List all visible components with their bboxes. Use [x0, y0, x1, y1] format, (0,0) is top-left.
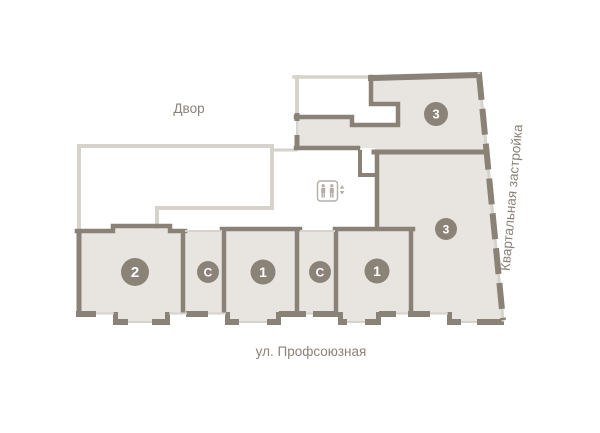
street-label: ул. Профсоюзная [256, 344, 367, 359]
apartment-3a-corridor-fill [296, 75, 486, 152]
unit-badge-s1[interactable]: С [197, 261, 219, 283]
unit-badge-1a[interactable]: 1 [251, 260, 276, 285]
person-icon [330, 184, 334, 197]
arrow-down-icon [340, 191, 345, 195]
floorplan-svg: 2 С 1 С 1 3 3 Двор ул. Профсоюзная Кварт… [0, 0, 600, 433]
floorplan-page: 2 С 1 С 1 3 3 Двор ул. Профсоюзная Кварт… [0, 0, 600, 433]
elevator-icon [318, 181, 345, 201]
unit-badge-s2[interactable]: С [309, 261, 331, 283]
unit-badge-s2-label: С [316, 265, 325, 279]
block-label: Квартальная застройка [498, 123, 526, 271]
unit-badge-3a-label: 3 [432, 107, 439, 122]
arrow-up-icon [340, 185, 345, 189]
unit-badge-s1-label: С [204, 265, 213, 279]
person-icon [321, 184, 325, 197]
unit-badge-1b[interactable]: 1 [365, 259, 390, 284]
unit-badge-2[interactable]: 2 [121, 258, 149, 286]
unit-badge-3b[interactable]: 3 [435, 218, 457, 240]
courtyard-outline [79, 77, 371, 229]
unit-badge-3a[interactable]: 3 [424, 102, 448, 126]
unit-badge-3b-label: 3 [443, 222, 450, 236]
unit-badge-1a-label: 1 [259, 264, 267, 280]
unit-badge-2-label: 2 [131, 264, 139, 281]
courtyard-label: Двор [173, 101, 204, 116]
unit-badge-1b-label: 1 [373, 263, 381, 279]
